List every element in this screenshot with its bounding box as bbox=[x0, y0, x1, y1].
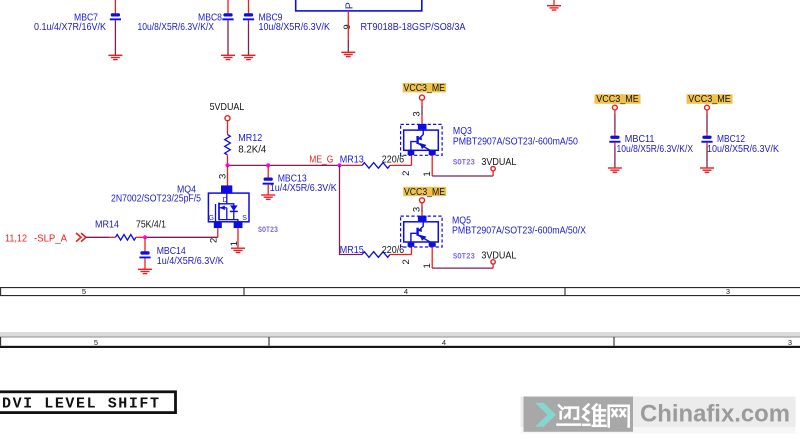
svg-text:SOT23: SOT23 bbox=[258, 226, 278, 235]
svg-text:MR15: MR15 bbox=[340, 244, 364, 256]
svg-text:8.2K/4: 8.2K/4 bbox=[238, 144, 266, 156]
svg-text:10u/8/X5R/6.3V/K/X: 10u/8/X5R/6.3V/K/X bbox=[617, 143, 694, 155]
svg-text:3VDUAL: 3VDUAL bbox=[481, 250, 516, 262]
svg-text:VCC3_ME: VCC3_ME bbox=[688, 93, 731, 105]
svg-text:75K/4/1: 75K/4/1 bbox=[136, 219, 166, 231]
svg-text:P: P bbox=[344, 2, 356, 9]
svg-text:5: 5 bbox=[94, 338, 98, 347]
svg-text:3VDUAL: 3VDUAL bbox=[481, 156, 516, 168]
svg-text:10u/8/X5R/6.3V/K: 10u/8/X5R/6.3V/K bbox=[259, 21, 331, 33]
svg-text:2N7002/SOT23/25pF/5: 2N7002/SOT23/25pF/5 bbox=[111, 193, 201, 205]
svg-text:VCC3_ME: VCC3_ME bbox=[404, 186, 445, 198]
svg-text:G: G bbox=[208, 215, 213, 222]
svg-text:PMBT2907A/SOT23/-600mA/50/X: PMBT2907A/SOT23/-600mA/50/X bbox=[452, 225, 586, 237]
svg-text:3: 3 bbox=[218, 174, 229, 179]
svg-text:3: 3 bbox=[788, 338, 792, 347]
svg-text:3: 3 bbox=[726, 287, 730, 296]
svg-text:2: 2 bbox=[208, 238, 219, 243]
svg-text:S: S bbox=[242, 215, 247, 222]
svg-text:SOT23: SOT23 bbox=[453, 158, 475, 167]
svg-text:MR13: MR13 bbox=[340, 153, 364, 165]
svg-text:MR12: MR12 bbox=[238, 132, 262, 144]
svg-text:MR14: MR14 bbox=[95, 219, 119, 231]
svg-text:11,12: 11,12 bbox=[5, 233, 27, 245]
svg-text:2: 2 bbox=[401, 171, 412, 176]
svg-text:10u/8/X5R/6.3V/K: 10u/8/X5R/6.3V/K bbox=[707, 143, 779, 155]
svg-text:5VDUAL: 5VDUAL bbox=[210, 101, 245, 113]
svg-text:DVI LEVEL SHIFT: DVI LEVEL SHIFT bbox=[2, 395, 159, 412]
svg-text:VCC3_ME: VCC3_ME bbox=[404, 82, 446, 94]
svg-text:1: 1 bbox=[422, 263, 433, 268]
svg-text:9: 9 bbox=[342, 24, 353, 29]
svg-text:ME_G: ME_G bbox=[309, 153, 333, 165]
svg-text:PMBT2907A/SOT23/-600mA/50: PMBT2907A/SOT23/-600mA/50 bbox=[453, 136, 578, 148]
svg-text:2: 2 bbox=[401, 259, 412, 264]
svg-text:RT9018B-18GSP/SO8/3A: RT9018B-18GSP/SO8/3A bbox=[361, 21, 466, 33]
svg-text:4: 4 bbox=[404, 287, 408, 296]
svg-text:1u/4/X5R/6.3V/K: 1u/4/X5R/6.3V/K bbox=[270, 182, 337, 194]
svg-text:-SLP_A: -SLP_A bbox=[34, 233, 67, 245]
svg-text:SOT23: SOT23 bbox=[453, 252, 475, 261]
svg-text:3: 3 bbox=[412, 111, 423, 116]
svg-text:5: 5 bbox=[82, 287, 86, 296]
svg-text:10u/8/X5R/6.3V/K/X: 10u/8/X5R/6.3V/K/X bbox=[138, 21, 215, 33]
svg-text:1u/4/X5R/6.3V/K: 1u/4/X5R/6.3V/K bbox=[157, 255, 224, 267]
svg-text:0.1u/4/X7R/16V/K: 0.1u/4/X7R/16V/K bbox=[34, 21, 106, 33]
svg-text:Chinafix.com: Chinafix.com bbox=[640, 401, 790, 428]
svg-text:VCC3_ME: VCC3_ME bbox=[596, 93, 639, 105]
svg-text:4: 4 bbox=[442, 338, 446, 347]
svg-text:1: 1 bbox=[422, 171, 433, 176]
svg-text:3: 3 bbox=[412, 207, 423, 212]
